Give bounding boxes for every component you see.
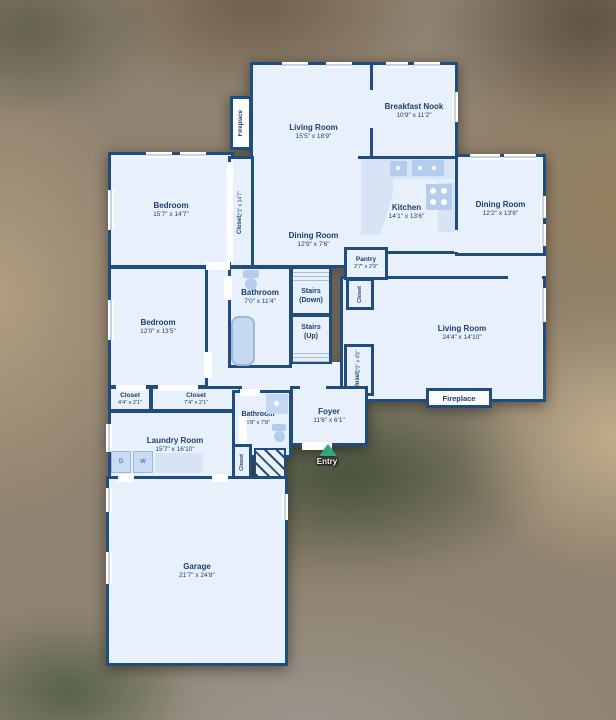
room-sub: (Up): [304, 333, 318, 342]
shower-drain: [274, 401, 279, 406]
entry-arrow-icon: [319, 444, 337, 456]
hatched-area: [254, 448, 286, 478]
room-name: Stairs: [301, 324, 320, 333]
room-dims: 2'1" x 14'7": [238, 191, 244, 216]
window: [540, 288, 546, 322]
passage: [508, 273, 542, 282]
room-name: Bedroom: [153, 201, 188, 211]
burner: [432, 166, 436, 170]
room-name: Living Room: [253, 123, 374, 133]
door-opening: [204, 352, 212, 378]
room-breakfast-nook: Breakfast Nook 10'9" x 11'2": [370, 62, 458, 160]
fireplace-label: Fireplace: [443, 394, 476, 403]
room-name: Bathroom: [241, 288, 279, 298]
room-dims: 15'5" x 18'9": [253, 133, 374, 141]
room-name: Bedroom: [140, 318, 175, 328]
window: [180, 152, 206, 158]
room-dims: 14'1" x 13'6": [389, 213, 425, 221]
stove-icon: [412, 160, 444, 176]
window: [540, 224, 546, 246]
room-name: Closet: [120, 392, 140, 400]
laundry-counter: [155, 453, 203, 473]
room-name: Kitchen: [392, 203, 421, 213]
door-opening: [206, 262, 230, 270]
stair-treads: [293, 350, 329, 362]
cooktop-icon: [426, 184, 452, 210]
room-name: Garage: [183, 562, 211, 572]
room-name: Closet: [239, 454, 246, 471]
room-name: Dining Room: [476, 200, 526, 210]
fireplace-bottom: Fireplace: [426, 388, 492, 408]
room-name: Pantry: [356, 256, 376, 264]
room-name: Closet: [186, 392, 206, 400]
room-closet-pantry: Closet: [346, 278, 374, 310]
door-opening: [158, 385, 198, 391]
room-dims: 11'6" x 6'1": [313, 417, 345, 425]
burner: [441, 199, 447, 205]
window: [504, 154, 536, 160]
room-dims: 12'0" x 13'5": [140, 328, 176, 336]
room-sub: (Down): [299, 297, 323, 306]
room-pantry: Pantry 2'7" x 2'9": [344, 247, 388, 280]
window: [386, 62, 408, 68]
room-foyer: Foyer 11'6" x 6'1": [290, 386, 368, 446]
window: [326, 62, 352, 68]
sink-icon: [390, 161, 407, 176]
room-dims: 15'7" x 14'7": [153, 211, 189, 219]
room-dims: 2'7" x 2'9": [354, 264, 378, 271]
toilet-icon: [272, 424, 286, 431]
window: [452, 92, 458, 122]
washer-icon: W: [133, 451, 153, 473]
toilet-bowl: [274, 431, 285, 442]
toilet-icon: [243, 270, 259, 278]
room-living-room-top: Living Room 15'5" x 18'9" Dining Room 12…: [250, 62, 374, 268]
room-dims: 7'4" x 2'1": [184, 400, 208, 407]
closet-label: Closet: [357, 286, 364, 303]
burner: [430, 199, 436, 205]
passage: [454, 230, 462, 252]
floorplan-screenshot: Living Room 15'5" x 18'9" Dining Room 12…: [0, 0, 616, 720]
door-opening: [118, 474, 134, 482]
window: [108, 300, 114, 340]
passage: [300, 384, 326, 393]
room-dims: 5'8" x 7'8": [246, 420, 270, 427]
window: [470, 154, 500, 160]
room-bedroom-2: Bedroom 12'0" x 13'5": [108, 266, 208, 388]
window: [282, 494, 288, 520]
window: [282, 62, 308, 68]
washer-letter: W: [140, 459, 146, 465]
entry-label: Entry: [301, 457, 353, 466]
room-dims: 2'0" x 4'8": [356, 350, 362, 372]
sink-drain: [396, 166, 400, 170]
room-bedroom-top: Bedroom 15'7" x 14'7": [108, 152, 234, 268]
room-dims: 10'9" x 11'2": [396, 112, 431, 120]
room-name: Dining Room: [253, 231, 374, 241]
room-garage: Garage 21'7" x 24'8": [106, 476, 288, 666]
room-name: Laundry Room: [147, 436, 203, 446]
fireplace-top: Fireplace: [230, 96, 252, 150]
window: [146, 152, 172, 158]
door-opening: [239, 416, 247, 444]
door-opening: [116, 385, 146, 391]
stair-treads: [293, 269, 329, 281]
door-opening: [212, 474, 228, 482]
room-name: Closet: [237, 215, 245, 233]
burner: [430, 188, 436, 194]
room-name: Closet: [357, 286, 364, 303]
door-opening: [224, 276, 232, 300]
dryer-icon: D: [111, 451, 131, 473]
window: [108, 190, 114, 230]
burner: [441, 188, 447, 194]
room-dims: 21'7" x 24'8": [179, 572, 215, 580]
toilet-bowl: [245, 278, 257, 290]
closet-label: Closet: [239, 454, 246, 471]
window: [106, 424, 112, 452]
room-dims: 12'2" x 13'6": [483, 210, 519, 218]
window: [106, 488, 112, 512]
burner: [418, 166, 422, 170]
room-name: Stairs: [301, 288, 320, 297]
closet-label: Closet 2'0" x 4'8": [355, 350, 363, 390]
door-opening: [240, 389, 260, 396]
room-dining-room-right: Dining Room 12'2" x 13'6": [455, 154, 546, 256]
room-dims: 7'0" x 11'4": [244, 298, 276, 306]
passage: [368, 90, 375, 128]
closet-label: Closet 2'1" x 14'7": [237, 191, 245, 234]
window: [540, 196, 546, 218]
door-opening: [227, 162, 233, 262]
floorplan: Living Room 15'5" x 18'9" Dining Room 12…: [0, 0, 616, 720]
room-name: Breakfast Nook: [385, 102, 444, 112]
room-closet-laundry: Closet: [232, 444, 252, 480]
room-name: Living Room: [438, 324, 486, 334]
living-room-label: Living Room 15'5" x 18'9": [253, 123, 374, 141]
fireplace-label: Fireplace: [238, 110, 244, 136]
room-name: Foyer: [318, 407, 340, 417]
window: [106, 552, 112, 584]
room-dims: 4'4" x 2'1": [118, 400, 142, 407]
bathtub-icon: [231, 316, 255, 366]
dryer-letter: D: [119, 459, 123, 465]
room-dims: 24'4" x 14'10": [442, 334, 481, 342]
shower-icon: [266, 394, 288, 414]
window: [414, 62, 440, 68]
